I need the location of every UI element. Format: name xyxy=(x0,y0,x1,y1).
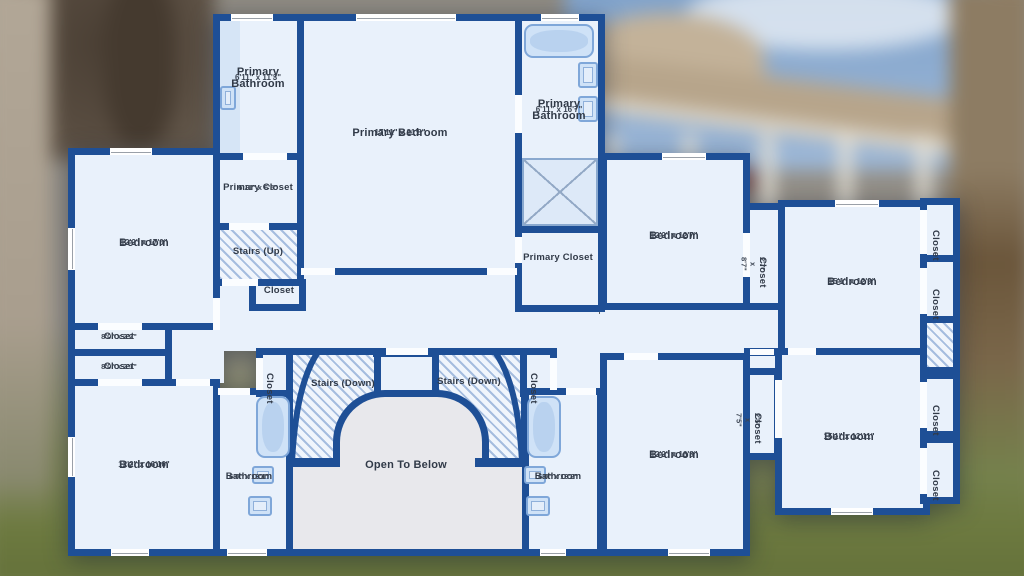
room-name: Stairs (Down) xyxy=(437,377,501,388)
window xyxy=(831,508,873,515)
wall-stub xyxy=(286,458,340,467)
room-name: Closet xyxy=(929,405,940,436)
door-gap xyxy=(222,279,258,286)
door-gap xyxy=(213,298,220,330)
window xyxy=(662,153,706,160)
door-gap xyxy=(301,268,335,275)
room-dims: 12'2" x 16'8" xyxy=(651,450,698,460)
room-primary-bedroom xyxy=(297,14,522,275)
door-gap xyxy=(920,382,927,428)
bathtub-icon xyxy=(256,396,290,458)
door-gap xyxy=(176,379,210,386)
window xyxy=(68,437,75,477)
door-gap xyxy=(243,153,287,160)
sink-icon xyxy=(248,496,272,516)
room-name: Stairs (Up) xyxy=(233,247,283,258)
wall-stub xyxy=(475,458,529,467)
room-name: Primary Closet xyxy=(523,253,593,264)
window xyxy=(68,228,75,270)
room-dims: 6'0" x 13'2" xyxy=(538,472,578,481)
door-gap xyxy=(256,358,263,390)
hallway-above-bath-w xyxy=(219,311,283,351)
floor-plan: Primary Bathroom 6'11" x 11'3" Primary B… xyxy=(0,0,1024,576)
bathtub-icon xyxy=(524,24,594,58)
window xyxy=(356,14,456,21)
room-dims: 6'11" x 6'5" xyxy=(238,183,277,192)
room-dims: 12'2" x 12'7" xyxy=(651,231,698,241)
window xyxy=(541,14,579,21)
room-name: Closet xyxy=(929,289,940,320)
room-dims: 6'11" x 11'3" xyxy=(235,73,281,83)
door-gap xyxy=(920,448,927,494)
floor-plan-screenshot: Primary Bathroom 6'11" x 11'3" Primary B… xyxy=(0,0,1024,576)
sink-icon xyxy=(578,62,598,88)
open-to-below-area xyxy=(286,460,529,556)
window xyxy=(668,549,710,556)
door-gap xyxy=(98,379,142,386)
window xyxy=(231,14,273,21)
window xyxy=(227,549,267,556)
room-name: Closet xyxy=(263,373,274,404)
door-gap xyxy=(487,268,517,275)
room-name: Stairs (Down) xyxy=(311,379,375,390)
door-gap xyxy=(229,223,269,230)
door-gap xyxy=(624,353,658,360)
window xyxy=(110,148,152,155)
door-gap xyxy=(775,380,782,438)
room-dims: 8'0" x 2'2" xyxy=(101,332,137,341)
sink-icon xyxy=(526,496,550,516)
room-dims: 15'1" x 12'9" xyxy=(829,277,876,287)
window xyxy=(540,549,566,556)
room-dims: 2'7" x 8'7" xyxy=(739,257,767,271)
door-gap xyxy=(920,210,927,254)
shower-icon xyxy=(522,158,598,226)
chimney-hatch xyxy=(920,316,960,374)
door-gap xyxy=(750,349,774,355)
window xyxy=(111,549,149,556)
window xyxy=(835,200,879,207)
room-name: Closet xyxy=(264,286,294,297)
bathtub-icon xyxy=(527,396,561,458)
door-gap xyxy=(920,268,927,314)
door-gap xyxy=(386,348,428,355)
room-dims: 17'11" x 21'8" xyxy=(375,128,426,138)
room-name: Closet xyxy=(929,470,940,501)
room-dims: 2'5" x 7'5" xyxy=(734,413,762,427)
room-dims: 15'1" x 12'11" xyxy=(824,432,875,442)
open-to-below-dome xyxy=(333,390,489,468)
door-gap xyxy=(515,237,522,263)
room-primary-closet-2 xyxy=(515,226,605,312)
room-dims: 12'2" x 17'0" xyxy=(121,238,168,248)
room-dims: 6'0" x 13'1" xyxy=(229,472,269,481)
door-gap xyxy=(515,95,522,133)
room-name: Open To Below xyxy=(365,459,447,471)
room-dims: 12'2" x 16'10" xyxy=(118,460,169,470)
door-gap xyxy=(566,388,596,395)
door-gap xyxy=(788,348,816,355)
door-gap xyxy=(98,323,142,330)
door-gap xyxy=(550,358,557,390)
room-name: Closet xyxy=(527,373,538,404)
room-name: Closet xyxy=(929,230,940,261)
room-dims: 6'11" x 16'7" xyxy=(536,105,583,115)
room-dims: 8'0" x 2'1" xyxy=(101,362,137,371)
door-gap xyxy=(218,388,250,395)
